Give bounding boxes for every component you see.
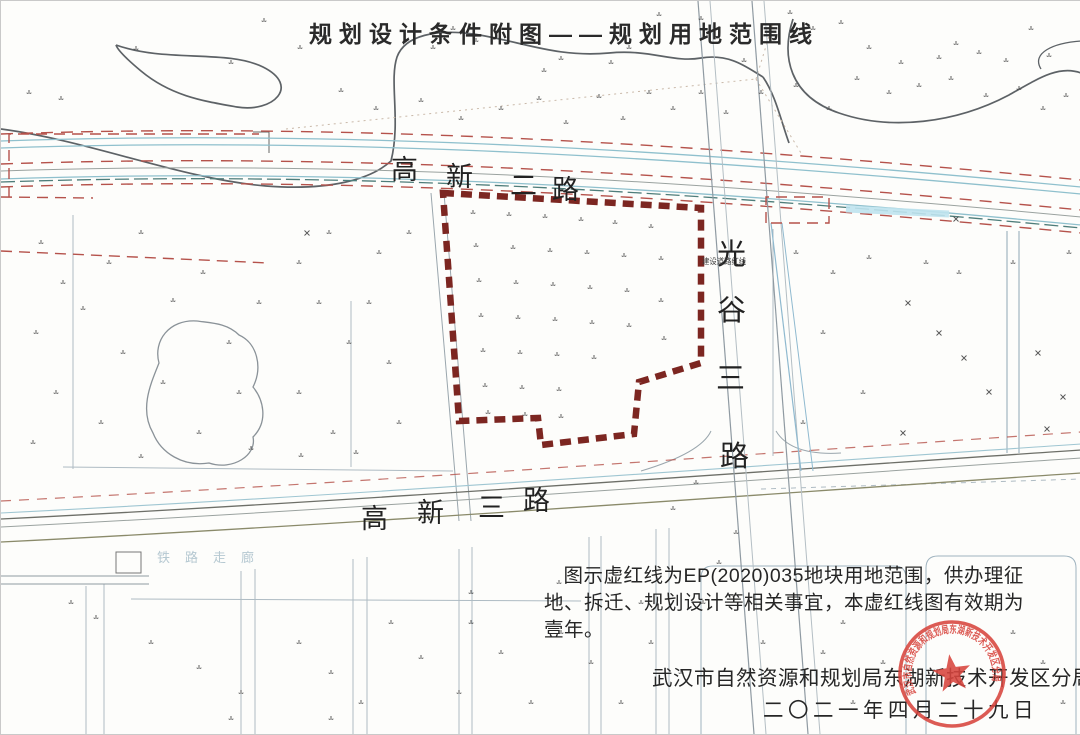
vegetation-mark (557, 580, 562, 584)
vegetation-mark (555, 352, 560, 356)
vegetation-mark (639, 600, 644, 604)
vegetation-mark (523, 412, 528, 416)
vegetation-mark (459, 116, 464, 120)
vegetation-mark (471, 210, 476, 214)
vegetation-mark (821, 650, 826, 654)
vegetation-mark (683, 28, 688, 32)
vegetation-mark (514, 280, 519, 284)
vegetation-mark (831, 270, 836, 274)
vegetation-mark (543, 214, 548, 218)
vegetation-mark (121, 350, 126, 354)
vegetation-mark (917, 83, 922, 87)
contour-lines (1, 19, 1080, 187)
vegetation-mark (229, 716, 234, 720)
vegetation-mark (486, 410, 491, 414)
vegetation-mark (431, 45, 436, 49)
vegetation-mark (516, 315, 521, 319)
vegetation-mark (839, 20, 844, 24)
x-marks-layer (305, 217, 1066, 436)
vegetation-mark (984, 93, 989, 97)
vegetation-mark (649, 224, 654, 228)
vegetation-mark (201, 270, 206, 274)
vegetation-mark (387, 360, 392, 364)
vegetation-mark (659, 256, 664, 260)
vegetation-mark (69, 600, 74, 604)
vegetation-mark (559, 630, 564, 634)
vegetation-mark (397, 420, 402, 424)
vegetation-mark (419, 655, 424, 659)
vegetation-mark (801, 420, 806, 424)
pond-outline (147, 321, 263, 465)
vegetation-mark (609, 60, 614, 64)
vegetation-mark (542, 68, 547, 72)
vegetation-mark (699, 90, 704, 94)
vegetation-mark (621, 116, 626, 120)
x-mark (987, 390, 992, 395)
vegetation-mark (788, 10, 793, 14)
vegetation-mark (297, 640, 302, 644)
vegetation-mark (477, 278, 482, 282)
vegetation-mark (317, 300, 322, 304)
vegetation-mark (139, 230, 144, 234)
vegetation-mark (149, 640, 154, 644)
vegetation-mark (94, 615, 99, 619)
vegetation-mark (54, 390, 59, 394)
vegetation-mark (679, 670, 684, 674)
vegetation-mark (197, 665, 202, 669)
vegetation-mark (671, 506, 676, 510)
vegetation-mark (262, 18, 267, 22)
vegetation-mark (937, 55, 942, 59)
vegetation-mark (559, 56, 564, 60)
vegetation-mark (529, 700, 534, 704)
vegetation-mark (1029, 26, 1034, 30)
vegetation-mark (551, 282, 556, 286)
vegetation-mark (407, 230, 412, 234)
planning-boundary-red-line (443, 193, 701, 445)
vegetation-mark (585, 250, 590, 254)
vegetation-mark (899, 60, 904, 64)
vegetation-mark (588, 285, 593, 289)
x-mark (937, 331, 942, 336)
vegetation-mark (107, 260, 112, 264)
vegetation-mark (1004, 58, 1009, 62)
vegetation-mark (1041, 660, 1046, 664)
vegetation-mark (924, 260, 929, 264)
vegetation-mark (734, 530, 739, 534)
x-mark (906, 301, 911, 306)
vegetation-mark (377, 250, 382, 254)
vegetation-mark (419, 98, 424, 102)
vegetation-mark (949, 76, 954, 80)
vegetation-mark (649, 640, 654, 644)
vegetation-mark (841, 620, 846, 624)
vegetation-mark (237, 390, 242, 394)
vegetation-mark (507, 212, 512, 216)
vegetation-mark (299, 453, 304, 457)
vegetation-mark (821, 330, 826, 334)
vegetation-mark (861, 390, 866, 394)
x-mark (1045, 427, 1050, 432)
vegetation-mark (789, 680, 794, 684)
vegetation-mark (229, 60, 234, 64)
vegetation-mark (161, 380, 166, 384)
vegetation-mark (694, 480, 699, 484)
vegetation-mark (474, 243, 479, 247)
vegetation-mark (557, 387, 562, 391)
vegetation-mark (977, 50, 982, 54)
vegetation-mark (627, 45, 632, 49)
vegetation-mark (518, 350, 523, 354)
vegetation-mark (867, 45, 872, 49)
vegetation-mark (867, 255, 872, 259)
vegetation-mark (742, 58, 747, 62)
road-guanggu3-lines (698, 1, 820, 734)
vegetation-mark (197, 430, 202, 434)
vegetation-mark (257, 300, 262, 304)
vegetation-mark (227, 340, 232, 344)
vegetation-mark (239, 690, 244, 694)
vegetation-mark (1061, 700, 1066, 704)
vegetation-mark (625, 288, 630, 292)
vegetation-mark (319, 33, 324, 37)
vegetation-mark (474, 38, 479, 42)
vegetation-mark (881, 660, 886, 664)
vegetation-mark (359, 700, 364, 704)
vegetation-mark (1047, 53, 1052, 57)
vegetation-mark (590, 320, 595, 324)
vegetation-mark (548, 248, 553, 252)
vegetation-mark (354, 450, 359, 454)
vegetation-mark (520, 385, 525, 389)
vegetation-mark (957, 270, 962, 274)
vegetation-mark (134, 46, 139, 50)
vegetation-mark (27, 90, 32, 94)
vegetation-marks-layer (27, 10, 1072, 720)
vegetation-mark (537, 96, 542, 100)
vegetation-mark (671, 106, 676, 110)
vegetation-mark (139, 454, 144, 458)
planning-map-document: 规划设计条件附图——规划用地范围线 高 新 二 路 高 新 三 路 光 谷 三 … (0, 0, 1080, 735)
vegetation-mark (483, 383, 488, 387)
vegetation-mark (367, 300, 372, 304)
vegetation-mark (613, 220, 618, 224)
vegetation-mark (329, 670, 334, 674)
vegetation-mark (592, 355, 597, 359)
vegetation-mark (339, 88, 344, 92)
x-mark (305, 231, 310, 236)
x-mark (962, 356, 967, 361)
vegetation-mark (559, 414, 564, 418)
vegetation-mark (511, 245, 516, 249)
vegetation-mark (81, 306, 86, 310)
vegetation-mark (662, 336, 667, 340)
vegetation-mark (374, 106, 379, 110)
vegetation-mark (1011, 630, 1016, 634)
vegetation-mark (469, 590, 474, 594)
vegetation-mark (855, 76, 860, 80)
vegetation-mark (499, 106, 504, 110)
vegetation-mark (457, 690, 462, 694)
vegetation-mark (622, 253, 627, 257)
vegetation-mark (469, 620, 474, 624)
vegetation-mark (627, 323, 632, 327)
vegetation-mark (761, 640, 766, 644)
x-mark (901, 431, 906, 436)
x-mark (1061, 395, 1066, 400)
vegetation-mark (657, 12, 662, 16)
vegetation-mark (619, 700, 624, 704)
vegetation-mark (297, 390, 302, 394)
vegetation-mark (794, 250, 799, 254)
vegetation-mark (297, 260, 302, 264)
vegetation-mark (329, 716, 334, 720)
vegetation-mark (481, 348, 486, 352)
vegetation-mark (389, 620, 394, 624)
vegetation-mark (851, 700, 856, 704)
vegetation-mark (717, 560, 722, 564)
vegetation-mark (1011, 260, 1016, 264)
x-mark (1036, 351, 1041, 356)
vegetation-mark (327, 230, 332, 234)
vegetation-mark (31, 440, 36, 444)
vegetation-mark (451, 26, 456, 30)
red-dash-annotation-lines (1, 134, 829, 263)
vegetation-mark (298, 45, 303, 49)
vegetation-mark (171, 298, 176, 302)
road-gaoxin2-lines (1, 131, 1080, 233)
vegetation-mark (887, 90, 892, 94)
vegetation-mark (1067, 250, 1072, 254)
vegetation-mark (564, 120, 569, 124)
vegetation-mark (811, 26, 816, 30)
vegetation-mark (954, 41, 959, 45)
vegetation-mark (579, 217, 584, 221)
vegetation-mark (99, 420, 104, 424)
vegetation-mark (1064, 93, 1069, 97)
vegetation-mark (479, 313, 484, 317)
boundary-layer (443, 193, 701, 445)
vegetation-mark (331, 430, 336, 434)
vegetation-mark (1041, 106, 1046, 110)
vegetation-mark (39, 240, 44, 244)
vegetation-mark (724, 110, 729, 114)
vegetation-mark (659, 298, 664, 302)
vegetation-mark (499, 650, 504, 654)
vegetation-mark (553, 317, 558, 321)
vegetation-mark (59, 96, 64, 100)
map-canvas (1, 1, 1080, 734)
vegetation-mark (61, 280, 66, 284)
vegetation-mark (34, 330, 39, 334)
